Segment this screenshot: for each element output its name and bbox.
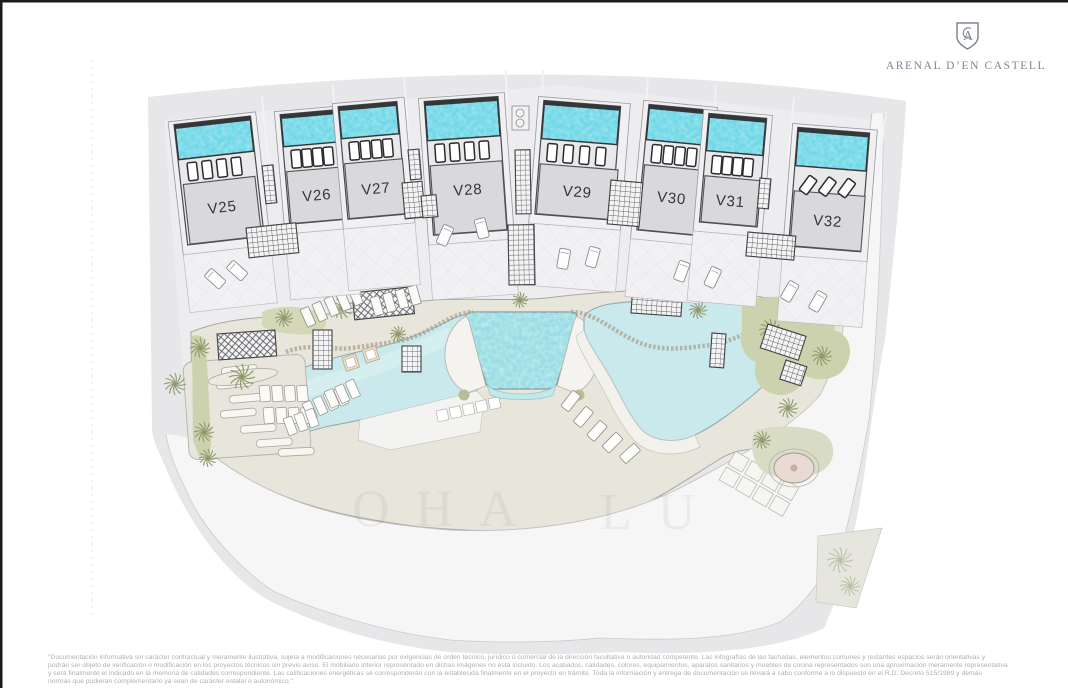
svg-text:V31: V31 bbox=[715, 192, 745, 211]
svg-text:V27: V27 bbox=[361, 179, 391, 198]
svg-text:LU: LU bbox=[600, 484, 721, 541]
svg-text:podrán ser objeto de verificac: podrán ser objeto de verificación o modi… bbox=[48, 662, 1008, 669]
svg-text:V30: V30 bbox=[656, 189, 687, 209]
svg-text:y será finalmente el indicado: y será finalmente el indicado en la memo… bbox=[48, 670, 982, 677]
svg-text:V28: V28 bbox=[453, 181, 483, 200]
svg-text:V26: V26 bbox=[302, 186, 332, 205]
svg-text:ARENAL D’EN CASTELL: ARENAL D’EN CASTELL bbox=[886, 60, 1046, 72]
svg-text:V32: V32 bbox=[812, 212, 842, 231]
svg-text:"Documentación informativa sin: "Documentación informativa sin carácter … bbox=[48, 654, 986, 661]
svg-text:V29: V29 bbox=[562, 183, 592, 202]
svg-text:V25: V25 bbox=[207, 198, 238, 218]
svg-text:normas que pudieran complement: normas que pudieran complementarlo ya se… bbox=[48, 678, 294, 685]
svg-text:OHA: OHA bbox=[352, 481, 543, 538]
